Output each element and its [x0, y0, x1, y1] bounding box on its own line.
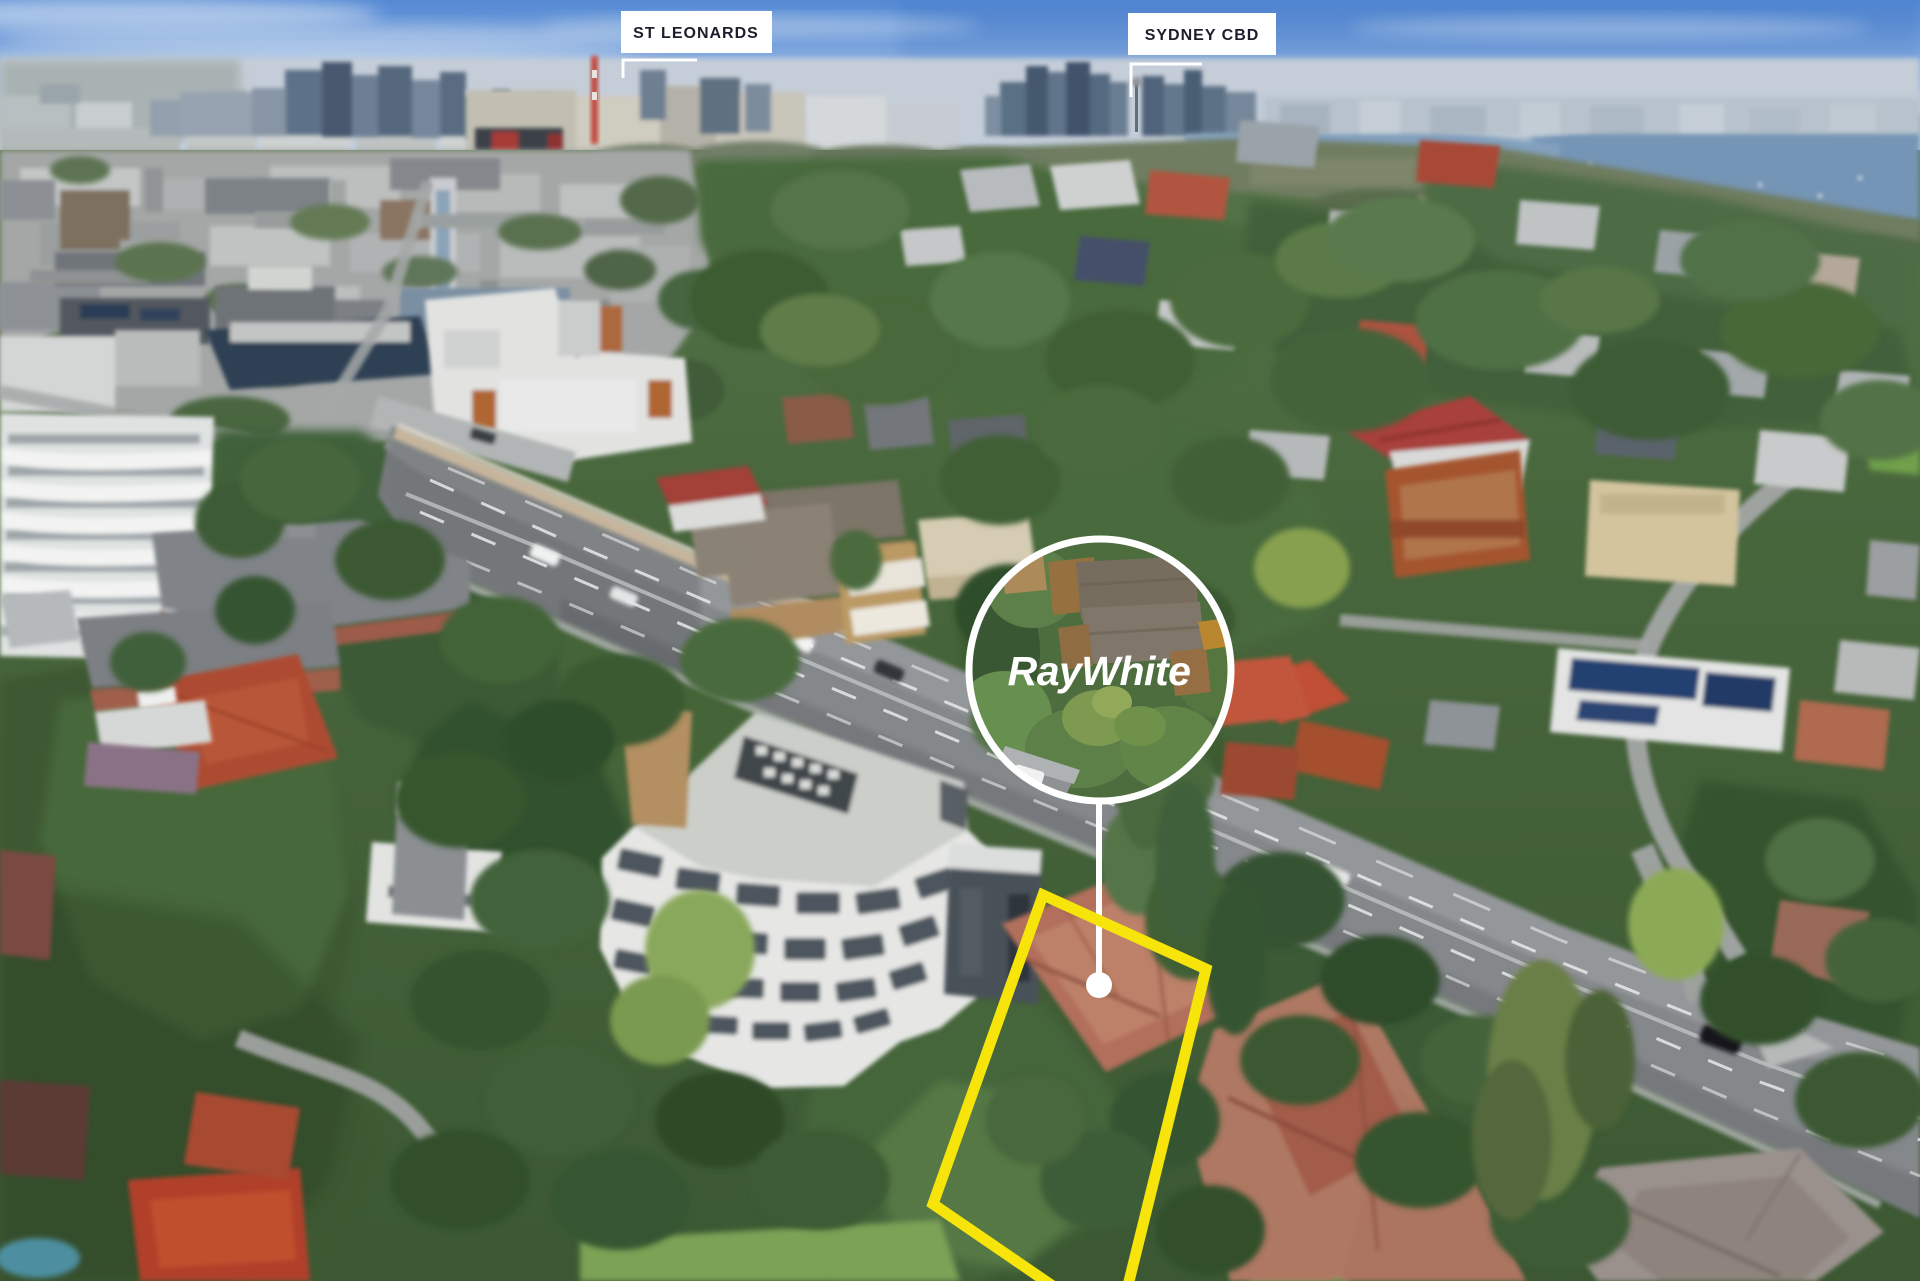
svg-text:ST LEONARDS: ST LEONARDS: [633, 25, 759, 42]
svg-text:SYDNEY CBD: SYDNEY CBD: [1145, 27, 1260, 44]
svg-text:RayWhite: RayWhite: [1008, 648, 1191, 694]
